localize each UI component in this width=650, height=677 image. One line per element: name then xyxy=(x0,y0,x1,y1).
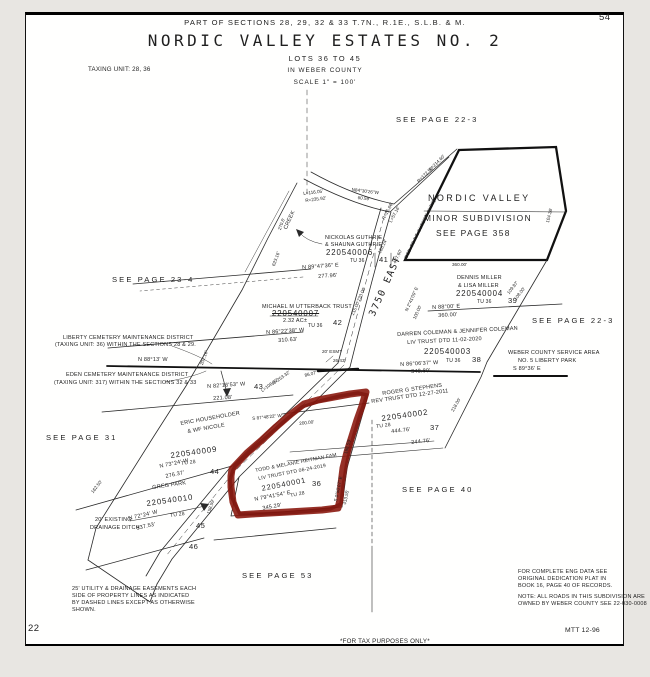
minor-subdivision-name: NORDIC VALLEY xyxy=(428,193,531,203)
taxing-unit: TAXING UNIT: 28, 36 xyxy=(88,66,150,73)
see-page-53: SEE PAGE 53 xyxy=(242,572,314,581)
parcel-220540004: 220540004 xyxy=(456,290,503,299)
lot-36: 36 xyxy=(312,480,321,489)
easement-note-2: SIDE OF PROPERTY LINES AS INDICATED xyxy=(72,593,189,599)
see-page-22-3-top: SEE PAGE 22-3 xyxy=(396,116,478,125)
dim-2643: 26.43' xyxy=(333,358,345,363)
section-line-bearing: N 88°13' W xyxy=(138,357,168,363)
scale-line: SCALE 1" = 100' xyxy=(125,79,525,86)
county-line: IN WEBER COUNTY xyxy=(125,67,525,74)
eden-district-1: EDEN CEMETERY MAINTENANCE DISTRICT xyxy=(66,372,188,378)
see-page-40: SEE PAGE 40 xyxy=(402,486,474,495)
section-line: PART OF SECTIONS 28, 29, 32 & 33 T.7N., … xyxy=(125,19,525,28)
eng-note-2: ORIGINAL DEDICATION PLAT IN xyxy=(518,576,606,582)
parcel-220540003: 220540003 xyxy=(424,348,471,357)
roads-note-2: OWNED BY WEBER COUNTY SEE 22-030-0008 xyxy=(518,601,647,607)
page-title: NORDIC VALLEY ESTATES NO. 2 xyxy=(105,32,545,50)
owner-miller-1: DENNIS MILLER xyxy=(457,275,502,281)
lot-37: 37 xyxy=(430,424,439,433)
see-page-31: SEE PAGE 31 xyxy=(46,434,118,443)
esmt-20-label: 20' ESMT xyxy=(322,349,342,354)
liberty-district-1: LIBERTY CEMETERY MAINTENANCE DISTRICT xyxy=(63,335,193,341)
tu-miller: TU 36 xyxy=(477,300,492,306)
eng-note-3: BOOK 16, PAGE 40 OF RECORDS. xyxy=(518,583,612,589)
dist-coleman: 348.80' xyxy=(411,368,431,375)
service-area-1: WEBER COUNTY SERVICE AREA xyxy=(508,350,600,356)
easement-note-4: SHOWN. xyxy=(72,607,96,613)
dist-guthrie: 277.96' xyxy=(318,273,338,281)
service-area-bearing: S 89°36' E xyxy=(513,366,541,372)
minor-subdivision-line2: MINOR SUBDIVISION xyxy=(424,214,532,224)
eng-note-1: FOR COMPLETE ENG DATA SEE xyxy=(518,569,607,575)
lot-41: 41 xyxy=(379,256,388,265)
ditch-label-2: DRAINAGE DITCH xyxy=(90,525,140,531)
liberty-district-2: (TAXING UNIT: 36) WITHIN THE SECTIONS 28… xyxy=(55,342,196,348)
parcel-220540006: 220540006 xyxy=(326,249,373,258)
eden-district-2: (TAXING UNIT: 317) WITHIN THE SECTIONS 3… xyxy=(54,380,197,386)
dist-miller: 360.00' xyxy=(438,312,458,319)
tu-coleman: TU 36 xyxy=(446,359,461,365)
acreage-utterback: 2.32 AC± xyxy=(283,318,307,324)
see-page-23-4: SEE PAGE 23-4 xyxy=(112,276,194,285)
page-number-22: 22 xyxy=(28,624,40,635)
service-area-2: NO. 5 LIBERTY PARK xyxy=(518,358,576,364)
see-page-22-3-right: SEE PAGE 22-3 xyxy=(532,317,614,326)
dist-lot43: 221.08' xyxy=(213,395,233,403)
minor-subdivision-dim: 360.00' xyxy=(452,262,467,267)
tax-purposes-footer: *FOR TAX PURPOSES ONLY* xyxy=(340,638,430,645)
roads-note-1: NOTE: ALL ROADS IN THIS SUBDIVISION ARE xyxy=(518,594,645,600)
easement-note-1: 25' UTILITY & DRAINAGE EASEMENTS EACH xyxy=(72,586,196,592)
lot-44: 44 xyxy=(210,468,219,477)
tu-guthrie: TU 36 xyxy=(350,259,365,265)
minor-subdivision-see-page: SEE PAGE 358 xyxy=(436,229,511,239)
tu-utterback: TU 36 xyxy=(308,324,323,330)
lot-42: 42 xyxy=(333,319,342,328)
plat-ref: MTT 12-96 xyxy=(565,627,600,635)
owner-guthrie-1: NICKOLAS GUTHRIE xyxy=(325,235,382,241)
lots-range: LOTS 36 TO 45 xyxy=(125,55,525,64)
plat-scan: PART OF SECTIONS 28, 29, 32 & 33 T.7N., … xyxy=(0,0,650,677)
lot-45: 45 xyxy=(196,522,205,531)
page-number-54: 54 xyxy=(599,13,611,24)
lot-38: 38 xyxy=(472,356,481,365)
lot-46: 46 xyxy=(189,543,198,552)
dist-utterback: 310.63' xyxy=(278,337,298,345)
ditch-label-1: 20' EXISTING xyxy=(95,517,132,523)
easement-note-3: BY DASHED LINES EXCEPT AS OTHERWISE xyxy=(72,600,195,606)
